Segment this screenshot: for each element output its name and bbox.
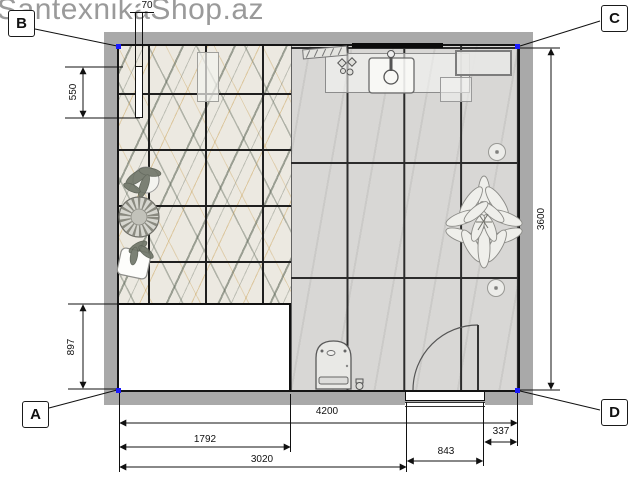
dim-partition-length: 550: [69, 84, 79, 101]
dim-shower-zone-width: 1792: [194, 435, 216, 445]
dim-room-depth: 3600: [537, 208, 547, 230]
corner-marker-bottom-right: [515, 388, 520, 393]
corner-label-a: A: [22, 401, 49, 428]
corner-marker-bottom-left: [116, 388, 121, 393]
dim-wall-to-door: 3020: [251, 455, 273, 465]
leader-c: [520, 21, 600, 46]
corner-label-b: B: [8, 10, 35, 37]
corner-marker-top-right: [515, 44, 520, 49]
leader-a: [49, 390, 117, 408]
leader-b: [35, 29, 117, 46]
corner-marker-top-left: [116, 44, 121, 49]
dim-partition-thickness: 70: [140, 1, 153, 11]
dim-door-to-corner: 337: [493, 427, 510, 437]
dim-bath-zone-depth: 897: [67, 339, 77, 356]
floor-plan-page: { "watermark": "SantexnikaShop.az", "cor…: [0, 0, 636, 477]
leader-d: [520, 391, 600, 410]
dim-door-opening: 843: [438, 447, 455, 457]
corner-label-d: D: [601, 399, 628, 426]
corner-label-c: C: [601, 5, 628, 32]
dim-room-width: 4200: [316, 407, 338, 417]
